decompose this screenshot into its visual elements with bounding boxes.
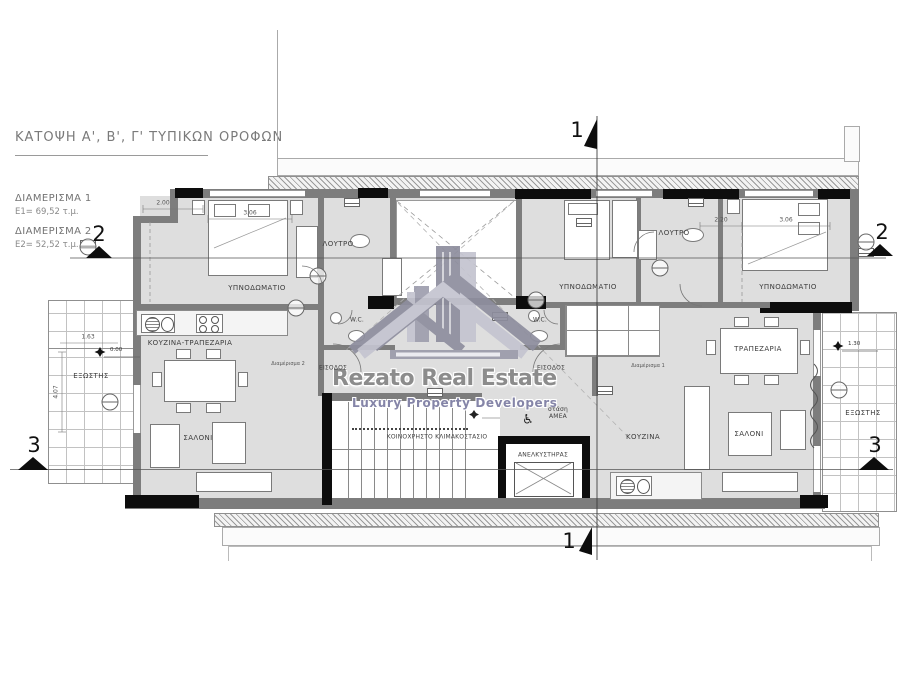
pillow	[568, 203, 598, 215]
room-label-balcony-right: ΕΞΩΣΤΗΣ	[845, 409, 880, 417]
column	[358, 188, 388, 198]
room-label-elevator: ΑΝΕΛΚΥΣΤΗΡΑΣ	[518, 453, 568, 460]
room-label-stairwell: ΚΟΙΝΟΧΡΗΣΤΟ ΚΛΙΜΑΚΟΣΤΑΣΙΟ	[387, 435, 488, 442]
chair	[206, 403, 221, 413]
window	[745, 190, 813, 197]
sofa-right	[722, 472, 798, 492]
room-label-ada-spot: στάση ΑΜΕΑ	[548, 407, 568, 421]
section-marker-2-right: 2	[875, 220, 888, 244]
partition-left-wc-bottom	[322, 345, 395, 350]
neighbor-building-top-corner	[844, 126, 860, 162]
room-label-living-right: ΣΑΛΟΝΙ	[734, 430, 763, 438]
pillow	[798, 222, 820, 235]
sofa-left	[196, 472, 272, 492]
room-label-living-left: ΣΑΛΟΝΙ	[183, 434, 212, 442]
section-marker-1-bottom: 1	[562, 529, 575, 553]
partition-right-bath-bed	[718, 196, 723, 306]
burner	[199, 325, 207, 333]
unit-label-2: Διαμέρισμα 2	[271, 362, 305, 368]
level-marker	[288, 300, 305, 317]
level-marker	[858, 234, 875, 251]
wall-right-bedroom-bottom	[760, 302, 852, 313]
room-label-bedroom-middle: ΥΠΝΟΔΩΜΑΤΙΟ	[559, 283, 617, 291]
room-label-entrance-left: ΕΙΣΟΔΟΣ	[319, 366, 347, 373]
chair	[152, 372, 162, 387]
column	[818, 189, 850, 199]
window	[596, 190, 652, 197]
balcony-left	[48, 348, 136, 484]
balcony-door-left	[133, 385, 141, 433]
wheelchair-icon: ♿	[522, 413, 534, 428]
room-label-bath-right: ΛΟΥΤΡΟ	[659, 229, 690, 237]
chair	[238, 372, 248, 387]
stair-landing-line	[332, 449, 498, 450]
level-marker	[831, 382, 848, 399]
nightstand	[727, 199, 740, 214]
dimension-value: 2.00	[156, 200, 169, 207]
bathtub-left	[382, 258, 402, 296]
unit-label-1: Διαμέρισμα 1	[631, 364, 665, 370]
sink-bowl-icon	[161, 317, 174, 332]
sink-bowl-icon	[637, 479, 650, 494]
level-marker	[652, 260, 669, 277]
level-marker	[310, 268, 327, 285]
chair	[764, 317, 779, 327]
dim-tag	[492, 312, 508, 321]
sink-basin-icon	[145, 317, 160, 332]
dimension-value: 3.06	[779, 217, 792, 224]
dimension-value: 4.07	[53, 385, 60, 398]
window	[210, 190, 305, 197]
balcony-door-right-2	[813, 446, 821, 492]
section-marker-2-left: 2	[92, 222, 105, 246]
chair	[800, 340, 810, 355]
sofa-right-vertical	[684, 386, 710, 470]
armchair	[150, 424, 180, 468]
dimension-value: 1.63	[81, 334, 94, 341]
section-marker-1-top: 1	[570, 118, 583, 142]
level-marker	[528, 292, 545, 309]
apartment-1-area: Ε1= 69,52 τ.μ.	[15, 207, 79, 217]
section-marker-3-left: 3	[27, 433, 40, 457]
neighbor-building-bottom	[228, 546, 872, 561]
wall-lightwell-right	[516, 196, 522, 306]
pillow	[214, 204, 236, 217]
wall-left	[133, 216, 141, 509]
level-marker	[102, 394, 119, 411]
room-label-kitchen-right: ΚΟΥΖΙΝΑ	[626, 433, 660, 441]
apartment-2-area: Ε2= 52,52 τ.μ.	[15, 240, 79, 250]
neighbor-building-top-left-edge	[277, 30, 278, 176]
elevator-wall-top	[498, 436, 590, 444]
chair	[764, 375, 779, 385]
dimension-value: 3.06	[243, 210, 256, 217]
neighbor-building-top-wall	[277, 158, 859, 176]
watermark-line2: Luxury Property Developers	[352, 396, 558, 410]
dimension-value: 2.20	[714, 217, 727, 224]
chair	[206, 349, 221, 359]
stair-dots-row	[352, 428, 468, 430]
party-wall-hatch-top	[268, 176, 859, 190]
room-label-entrance-right: ΕΙΣΟΔΟΣ	[537, 366, 565, 373]
chair	[176, 349, 191, 359]
chair	[706, 340, 716, 355]
burner	[211, 316, 219, 324]
room-label-dining-right: ΤΡΑΠΕΖΑΡΙΑ	[734, 345, 782, 353]
sink-basin-icon	[620, 479, 635, 494]
wall-lightwell-bottom	[390, 298, 522, 305]
armchair	[780, 410, 806, 450]
drawing-title: ΚΑΤΟΨΗ Α', Β', Γ' ΤΥΠΙΚΩΝ ΟΡΟΦΩΝ	[15, 130, 283, 145]
apartment-2-name: ΔΙΑΜΕΡΙΣΜΑ 2	[15, 226, 92, 237]
burner	[211, 325, 219, 333]
closet-middle	[612, 200, 638, 258]
dining-table-left	[164, 360, 236, 402]
stair-wall-left	[322, 393, 332, 505]
basin-left-wc	[330, 312, 342, 324]
elevator-wall-left	[498, 436, 506, 506]
balcony-left-upper	[48, 300, 136, 350]
wall-bottom	[125, 498, 825, 509]
room-label-wc-right: W.C.	[533, 318, 547, 325]
dim-tag	[344, 198, 360, 207]
window	[420, 190, 490, 197]
neighbor-building-bottom-wall	[222, 527, 880, 546]
dim-tag	[576, 218, 592, 227]
room-label-kitchen-dining-left: ΚΟΥΖΙΝΑ-ΤΡΑΠΕΖΑΡΙΑ	[148, 339, 233, 347]
nightstand	[192, 200, 205, 215]
room-label-balcony-left: ΕΞΩΣΤΗΣ	[73, 372, 108, 380]
level-value-left: 0.00	[110, 347, 122, 353]
pillow	[798, 203, 820, 216]
column	[368, 296, 394, 309]
column	[125, 495, 199, 508]
room-label-bedroom-right: ΥΠΝΟΔΩΜΑΤΙΟ	[759, 283, 817, 291]
closet-row-right	[565, 305, 660, 357]
chair	[734, 317, 749, 327]
stair-treads	[348, 402, 471, 499]
chair	[176, 403, 191, 413]
partition-left-bed-bath	[318, 196, 324, 306]
chair	[734, 375, 749, 385]
watermark-line1: Rezato Real Estate	[332, 366, 557, 391]
light-well	[396, 200, 517, 300]
level-value-right: 1.30	[848, 341, 860, 347]
room-label-wc-left: W.C.	[350, 318, 364, 325]
armchair	[212, 422, 246, 464]
burner	[199, 316, 207, 324]
column	[515, 189, 591, 199]
apartment-1-name: ΔΙΑΜΕΡΙΣΜΑ 1	[15, 193, 92, 204]
room-label-bath-left: ΛΟΥΤΡΟ	[323, 240, 354, 248]
elevator-wall-right	[582, 436, 590, 506]
dim-tag	[688, 198, 704, 207]
nightstand	[290, 200, 303, 215]
toilet-right-wc	[530, 330, 548, 342]
dim-tag	[597, 386, 613, 395]
balcony-door-right-1	[813, 330, 821, 376]
party-wall-hatch-bottom	[214, 513, 879, 527]
bathtub-right	[638, 230, 657, 260]
partition-left-corridor	[318, 306, 324, 396]
column	[175, 188, 203, 198]
column	[800, 495, 828, 508]
room-label-bedroom-left: ΥΠΝΟΔΩΜΑΤΙΟ	[228, 284, 286, 292]
section-marker-3-right: 3	[868, 433, 881, 457]
title-underline	[15, 155, 208, 156]
toilet-left-wc	[348, 330, 365, 342]
elevator-cab-inner	[514, 462, 574, 497]
floor-plan-sheet: ΚΑΤΟΨΗ Α', Β', Γ' ΤΥΠΙΚΩΝ ΟΡΟΦΩΝ ΔΙΑΜΕΡΙ…	[0, 0, 900, 675]
